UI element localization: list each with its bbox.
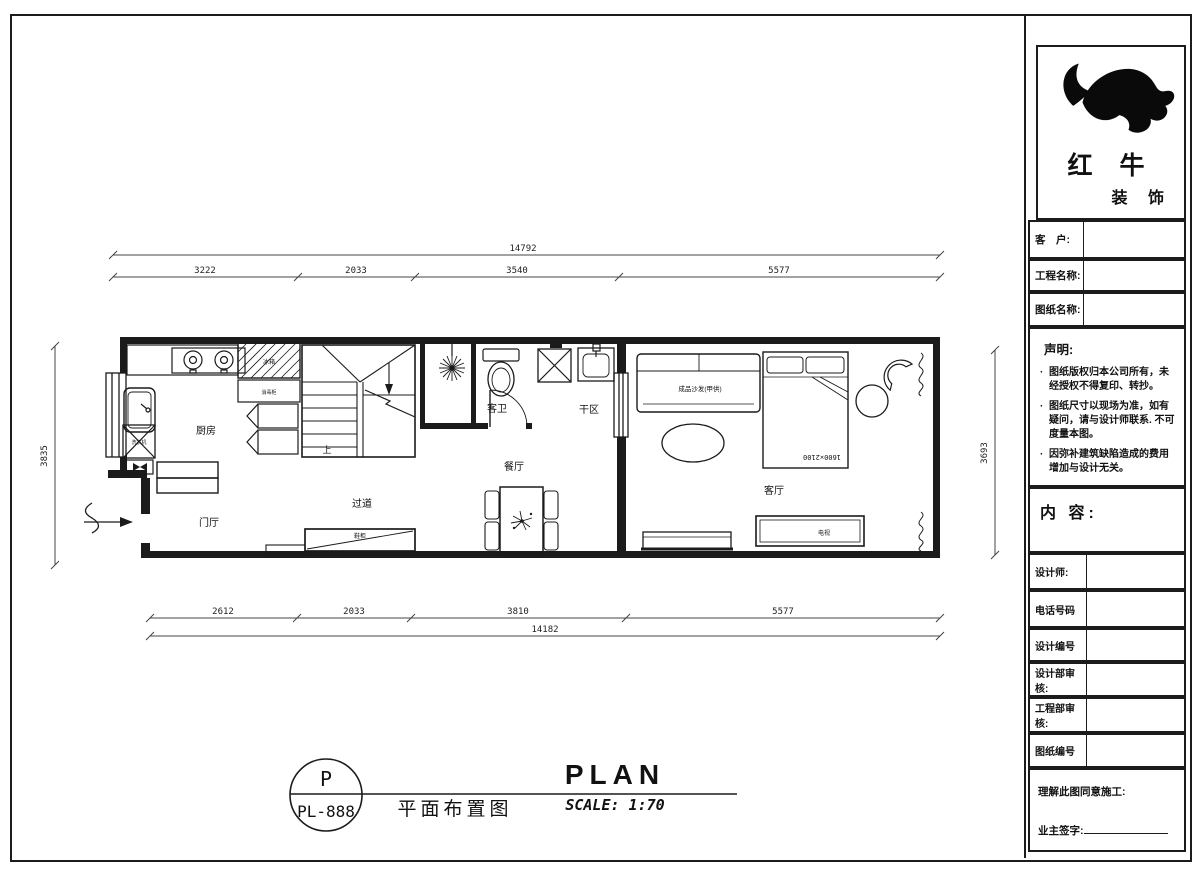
drawing-sheet: 14792 3222 2033 3540 5577 2612 2033 3810… bbox=[0, 0, 1200, 870]
room-label-foyer: 门厅 bbox=[199, 516, 219, 529]
declaration-text-2: 图纸尺寸以现场为准，如有疑问，请与设计师联系. 不可度量本图。 bbox=[1049, 400, 1178, 442]
owner-sign-label: 业主签字: bbox=[1038, 825, 1084, 837]
field-project: 工程名称: bbox=[1028, 259, 1186, 292]
bullet: · bbox=[1040, 448, 1049, 476]
drawing-title-en: PLAN bbox=[565, 759, 665, 790]
room-label-dry-area: 干区 bbox=[579, 404, 599, 416]
title-bar: P PL-888 平面布置图 PLAN SCALE: 1:70 bbox=[290, 759, 737, 831]
partition-door-panel bbox=[614, 373, 628, 437]
row-eng-review: 工程部审核: bbox=[1028, 697, 1186, 733]
dim-bottom-total: 14182 bbox=[531, 625, 558, 635]
dim-left-height: 3835 bbox=[40, 445, 50, 467]
drawing-code-letter: P bbox=[320, 767, 332, 791]
brand-name-sub: 装 饰 bbox=[1038, 184, 1184, 208]
bullet: · bbox=[1040, 366, 1049, 394]
drawing-scale: SCALE: 1:70 bbox=[565, 796, 664, 814]
dim-bottom-seg-3: 3810 bbox=[507, 607, 529, 617]
row-design-no-label: 设计编号 bbox=[1030, 630, 1087, 660]
corner-cabinet bbox=[247, 404, 298, 454]
declaration-item: · 因弥补建筑缺陷造成的费用增加与设计无关。 bbox=[1040, 448, 1178, 476]
declaration-text-1: 图纸版权归本公司所有，未经授权不得复印、转抄。 bbox=[1049, 366, 1178, 394]
label-bed-size: 1600×2100 bbox=[803, 453, 841, 461]
toilet bbox=[483, 349, 519, 396]
title-block-separator bbox=[1024, 14, 1026, 858]
dim-top-total: 14792 bbox=[509, 244, 536, 254]
rug bbox=[662, 424, 724, 462]
content-label: 内 容: bbox=[1040, 499, 1184, 523]
curtain-squiggles bbox=[919, 353, 923, 551]
drawing-code-number: PL-888 bbox=[297, 802, 355, 821]
declaration-title: 声明: bbox=[1044, 339, 1184, 358]
row-designer-label: 设计师: bbox=[1030, 555, 1087, 588]
label-tv: 电视 bbox=[818, 529, 830, 537]
living-room bbox=[637, 352, 923, 551]
room-label-guest-bath: 客卫 bbox=[487, 402, 507, 415]
row-drawing-no: 图纸编号 bbox=[1028, 733, 1186, 768]
signature-agree-text: 理解此图同意施工: bbox=[1038, 784, 1184, 799]
room-label-corridor: 过道 bbox=[352, 497, 372, 510]
sofa bbox=[637, 354, 760, 412]
dim-bottom-seg-4: 5577 bbox=[772, 607, 794, 617]
brand-logo-box: 红 牛 装 饰 bbox=[1036, 45, 1186, 220]
tv-cabinet bbox=[756, 516, 864, 546]
field-drawing: 图纸名称: bbox=[1028, 292, 1186, 327]
dim-top-seg-3: 3540 bbox=[506, 266, 528, 276]
signature-owner-label: 业主签字: bbox=[1038, 823, 1184, 838]
round-table bbox=[856, 385, 888, 417]
brand-logo bbox=[1038, 47, 1184, 139]
declaration-box: 声明: · 图纸版权归本公司所有，未经授权不得复印、转抄。 · 图纸尺寸以现场为… bbox=[1028, 327, 1186, 487]
shoe-cabinet bbox=[266, 529, 415, 553]
table-plant bbox=[511, 511, 532, 530]
staircase bbox=[302, 345, 415, 457]
room-label-living: 客厅 bbox=[764, 484, 784, 497]
declaration-item: · 图纸版权归本公司所有，未经授权不得复印、转抄。 bbox=[1040, 366, 1178, 394]
dining-set bbox=[485, 487, 558, 553]
signature-box: 理解此图同意施工: 业主签字: bbox=[1028, 768, 1186, 852]
row-design-no: 设计编号 bbox=[1028, 628, 1186, 662]
tub-chair bbox=[877, 353, 912, 390]
floor-plan-drawing: 14792 3222 2033 3540 5577 2612 2033 3810… bbox=[0, 0, 1020, 870]
room-label-kitchen: 厨房 bbox=[196, 424, 216, 437]
declaration-item: · 图纸尺寸以现场为准，如有疑问，请与设计师联系. 不可度量本图。 bbox=[1040, 400, 1178, 442]
field-project-label: 工程名称: bbox=[1030, 261, 1084, 290]
row-design-review: 设计部审核: bbox=[1028, 662, 1186, 697]
dim-right-height: 3693 bbox=[980, 442, 990, 464]
room-label-dining: 餐厅 bbox=[504, 460, 524, 473]
foyer-cabinet bbox=[157, 462, 218, 493]
row-eng-review-label: 工程部审核: bbox=[1030, 699, 1087, 731]
bed bbox=[763, 352, 848, 468]
field-drawing-label: 图纸名称: bbox=[1030, 294, 1084, 325]
dim-top-seg-1: 3222 bbox=[194, 266, 216, 276]
field-customer-label: 客 户: bbox=[1030, 222, 1084, 257]
bullet: · bbox=[1040, 400, 1049, 442]
owner-signature-line[interactable] bbox=[1084, 823, 1168, 834]
content-box: 内 容: bbox=[1028, 487, 1186, 553]
declaration-text-3: 因弥补建筑缺陷造成的费用增加与设计无关。 bbox=[1049, 448, 1178, 476]
field-customer: 客 户: bbox=[1028, 220, 1186, 259]
label-washer: 洗衣机 bbox=[131, 439, 146, 446]
entry-arrow bbox=[84, 503, 133, 533]
drawing-title-cn: 平面布置图 bbox=[397, 798, 512, 820]
dim-top-seg-4: 5577 bbox=[768, 266, 790, 276]
dim-bottom-seg-2: 2033 bbox=[343, 607, 365, 617]
label-stair-up: 上 bbox=[322, 445, 331, 455]
row-design-review-label: 设计部审核: bbox=[1030, 664, 1087, 695]
dim-bottom-seg-1: 2612 bbox=[212, 607, 234, 617]
label-fridge: 冰箱 bbox=[263, 358, 275, 366]
bench bbox=[641, 532, 733, 549]
label-sofa: 成品沙发(甲供) bbox=[678, 384, 721, 393]
dim-top-seg-2: 2033 bbox=[345, 266, 367, 276]
row-drawing-no-label: 图纸编号 bbox=[1030, 735, 1087, 766]
dimension-lines bbox=[51, 251, 999, 640]
row-phone-label: 电话号码 bbox=[1030, 592, 1087, 626]
dry-area-washer bbox=[538, 344, 571, 382]
row-phone: 电话号码 bbox=[1028, 590, 1186, 628]
label-shoe-cabinet: 鞋柜 bbox=[354, 532, 366, 540]
stove bbox=[172, 348, 245, 373]
label-sterilizer: 消毒柜 bbox=[261, 389, 276, 396]
shower-sprinkler bbox=[439, 344, 465, 381]
row-designer: 设计师: bbox=[1028, 553, 1186, 590]
brand-name-main: 红 牛 bbox=[1038, 146, 1184, 182]
washbasin bbox=[578, 344, 614, 381]
